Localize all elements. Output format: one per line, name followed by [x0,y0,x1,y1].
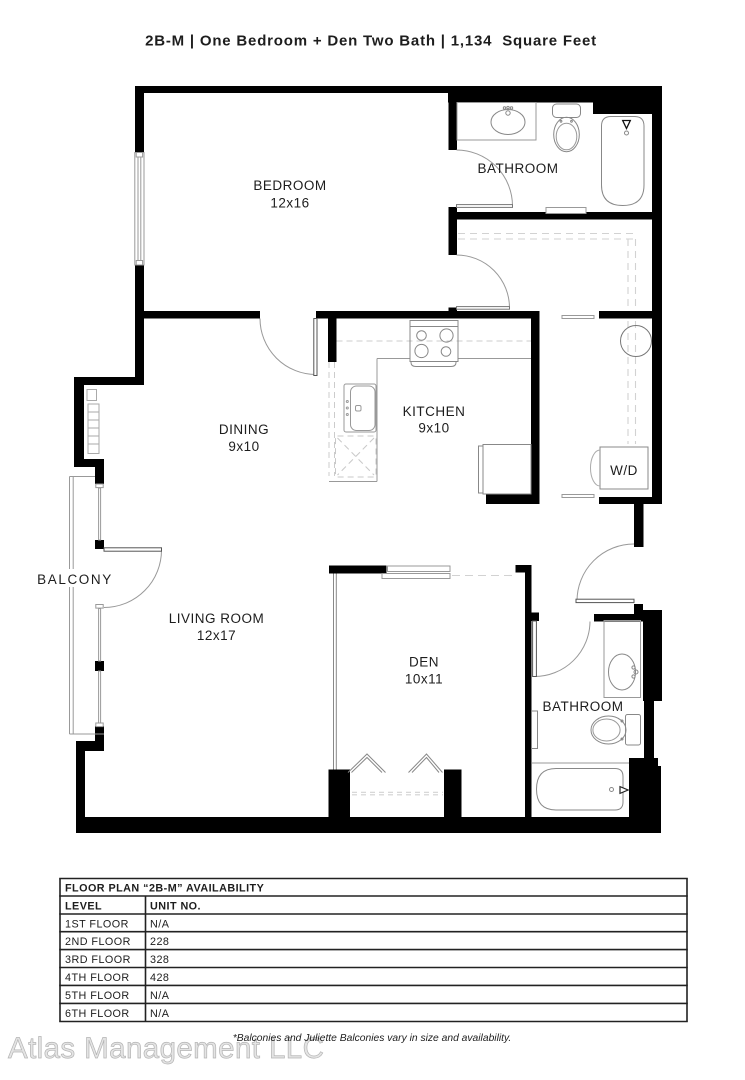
svg-text:N/A: N/A [150,1008,170,1020]
svg-text:DEN: DEN [409,655,439,670]
svg-text:4TH FLOOR: 4TH FLOOR [65,972,130,984]
svg-text:328: 328 [150,954,169,966]
svg-text:FLOOR PLAN “2B-M” AVAILABILITY: FLOOR PLAN “2B-M” AVAILABILITY [65,883,265,895]
svg-text:228: 228 [150,936,169,948]
svg-text:1ST FLOOR: 1ST FLOOR [65,918,129,930]
svg-text:W/D: W/D [610,463,638,478]
svg-text:9x10: 9x10 [418,421,449,436]
svg-text:12x17: 12x17 [197,628,236,643]
svg-text:UNIT NO.: UNIT NO. [150,901,201,913]
svg-text:10x11: 10x11 [405,672,443,687]
svg-text:BATHROOM: BATHROOM [543,699,624,714]
svg-text:BALCONY: BALCONY [37,572,113,587]
svg-text:6TH FLOOR: 6TH FLOOR [65,1008,130,1020]
svg-text:N/A: N/A [150,918,170,930]
svg-text:N/A: N/A [150,990,170,1002]
svg-text:*Balconies and Juliette Balcon: *Balconies and Juliette Balconies vary i… [233,1033,512,1044]
svg-text:LIVING ROOM: LIVING ROOM [169,611,265,626]
svg-text:12x16: 12x16 [270,196,309,211]
svg-text:KITCHEN: KITCHEN [403,404,466,419]
svg-text:3RD FLOOR: 3RD FLOOR [65,954,131,966]
svg-text:428: 428 [150,972,169,984]
svg-text:9x10: 9x10 [228,439,259,454]
svg-text:5TH FLOOR: 5TH FLOOR [65,990,130,1002]
svg-text:2ND FLOOR: 2ND FLOOR [65,936,131,948]
svg-text:2B-M | One Bedroom + Den Two B: 2B-M | One Bedroom + Den Two Bath | 1,13… [145,33,597,50]
svg-text:BATHROOM: BATHROOM [478,161,559,176]
svg-text:LEVEL: LEVEL [65,901,102,913]
svg-text:DINING: DINING [219,422,269,437]
svg-text:BEDROOM: BEDROOM [253,178,326,193]
